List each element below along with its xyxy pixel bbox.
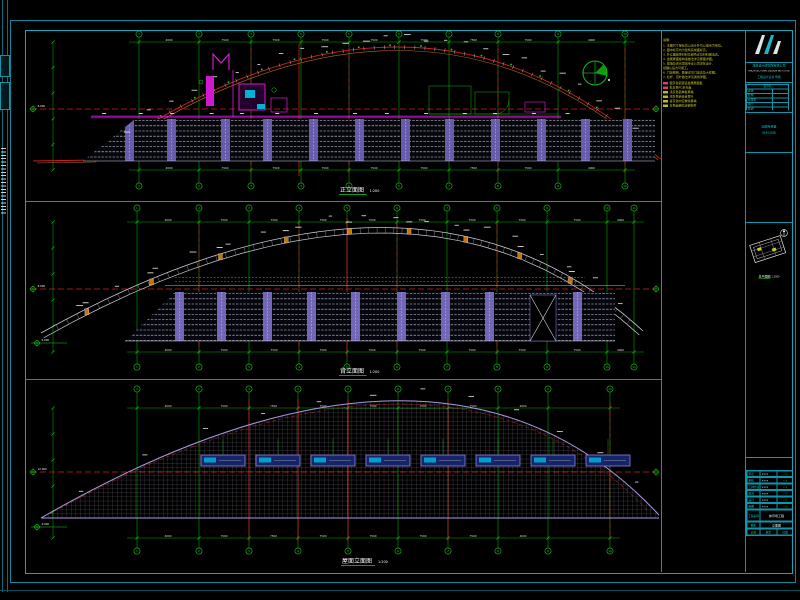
stamp-sublabel: (技术专用章)	[746, 131, 792, 137]
svg-text:8.000: 8.000	[38, 104, 46, 108]
svg-text:11: 11	[632, 206, 636, 210]
svg-text:7500: 7500	[221, 38, 228, 42]
company-logo	[751, 32, 785, 58]
svg-text:4: 4	[298, 365, 300, 369]
svg-text:4000: 4000	[165, 166, 172, 170]
svg-text:7500: 7500	[468, 348, 475, 352]
svg-text:1: 1	[136, 206, 138, 210]
svg-text:8: 8	[497, 32, 499, 36]
adjacent-sheet-block	[0, 55, 10, 77]
svg-text:9: 9	[557, 32, 559, 36]
svg-text:10: 10	[605, 365, 609, 369]
svg-text:7500: 7500	[470, 38, 477, 42]
truss-node-marker	[284, 237, 288, 243]
adjacent-sheet-text-column	[1, 148, 6, 216]
signature-scribble: ∼∿	[777, 478, 792, 484]
svg-text:4000: 4000	[164, 218, 171, 222]
svg-text:9: 9	[546, 365, 548, 369]
svg-text:7500: 7500	[220, 534, 227, 538]
svg-text:1: 1	[136, 387, 138, 391]
svg-text:3: 3	[250, 184, 252, 188]
svg-text:4: 4	[297, 549, 299, 553]
svg-text:4000: 4000	[164, 534, 171, 538]
svg-text:5: 5	[346, 206, 348, 210]
key-plan	[748, 226, 790, 272]
cosign-signature-cell	[773, 107, 789, 110]
truss-node-marker	[347, 228, 351, 234]
signature-scribble: ∼∿	[777, 497, 792, 503]
signature-role-label: 工种负责	[747, 484, 760, 490]
svg-text:7500: 7500	[369, 534, 376, 538]
svg-text:1: 1	[138, 184, 140, 188]
svg-text:4000: 4000	[588, 38, 595, 42]
key-plan-building	[750, 236, 786, 263]
svg-text:2: 2	[198, 32, 200, 36]
svg-text:6: 6	[396, 365, 398, 369]
svg-text:6: 6	[397, 387, 399, 391]
material-label: 白色氟碳喷涂钢构件	[670, 104, 697, 109]
svg-text:8: 8	[497, 184, 499, 188]
svg-text:7: 7	[448, 184, 450, 188]
svg-text:7500: 7500	[270, 534, 277, 538]
svg-text:1:200: 1:200	[378, 560, 388, 564]
svg-text:11: 11	[632, 365, 636, 369]
svg-text:4000: 4000	[164, 348, 171, 352]
level-line: 8.000	[30, 104, 660, 112]
titleblock-divider	[746, 457, 792, 458]
logo-stroke	[755, 35, 765, 54]
elevation-panel-front: 1122334455667788991010400075007500750075…	[25, 30, 661, 201]
key-plan-caption: 总平面图 1:2000	[746, 274, 792, 281]
signature-name: ×××	[760, 491, 777, 497]
company-name: 建筑设计研究院有限公司	[746, 63, 792, 70]
truss-node-marker	[568, 277, 572, 283]
svg-text:4000: 4000	[519, 404, 526, 408]
legend-notes: 1. 本图尺寸除标高以米计外均以毫米为单位。2. 图中标高均为建筑完成面标高。3…	[663, 44, 744, 80]
titleblock-label: 图名	[747, 522, 760, 528]
svg-text:4000: 4000	[617, 218, 624, 222]
svg-text:9: 9	[547, 549, 549, 553]
svg-text:7500: 7500	[319, 218, 326, 222]
svg-text:8: 8	[496, 206, 498, 210]
material-swatch	[663, 91, 668, 94]
svg-text:6: 6	[398, 184, 400, 188]
material-swatch	[663, 87, 668, 90]
svg-text:2: 2	[198, 184, 200, 188]
signature-name: ×××	[760, 484, 777, 490]
signature-scribble: ∼∿	[777, 491, 792, 497]
svg-text:3: 3	[250, 32, 252, 36]
svg-text:8.000: 8.000	[38, 284, 46, 288]
svg-text:7: 7	[446, 206, 448, 210]
brace-panel	[530, 295, 556, 341]
titleblock-divider	[746, 222, 792, 223]
svg-text:3: 3	[248, 206, 250, 210]
material-swatch	[663, 82, 668, 85]
svg-text:4000: 4000	[617, 348, 624, 352]
titleblock-divider	[746, 152, 792, 153]
svg-text:12.000: 12.000	[38, 467, 47, 471]
svg-text:10: 10	[623, 184, 627, 188]
svg-text:7500: 7500	[418, 348, 425, 352]
signature-role-label: 审定	[747, 471, 760, 477]
signature-row: 审核×××∼∿	[747, 477, 793, 484]
legend-material-items: 银灰色铝镁锰金属屋面板乳白色PC采光板浅灰色铝单板幕墙深灰色铝合金百叶蓝灰色中空…	[663, 81, 744, 108]
interior-rooms	[429, 86, 559, 114]
svg-text:7: 7	[447, 549, 449, 553]
svg-text:7500: 7500	[419, 534, 426, 538]
titleblock-bottom-row: 比例 1:200图号日期	[747, 529, 793, 536]
legend-title: 说明:	[663, 38, 744, 43]
svg-text:7500: 7500	[420, 166, 427, 170]
logo-stroke	[773, 41, 781, 54]
svg-text:7500: 7500	[524, 166, 531, 170]
svg-text:7500: 7500	[221, 166, 228, 170]
signature-row: 校对×××∼∿	[747, 490, 793, 497]
signature-role-label: 校对	[747, 491, 760, 497]
svg-text:7500: 7500	[368, 218, 375, 222]
truss-node-marker	[149, 279, 153, 285]
svg-text:5: 5	[347, 387, 349, 391]
signature-role-label: 设计	[747, 497, 760, 503]
titleblock-bottom-cell: 比例 1:200	[747, 529, 760, 535]
legend-material-item: 白色氟碳喷涂钢构件	[663, 104, 744, 109]
svg-text:7500: 7500	[270, 218, 277, 222]
svg-text:5: 5	[347, 549, 349, 553]
svg-text:8: 8	[496, 365, 498, 369]
svg-text:2: 2	[198, 549, 200, 553]
svg-text:10: 10	[608, 549, 612, 553]
svg-text:7500: 7500	[272, 166, 279, 170]
svg-text:正立面图: 正立面图	[340, 186, 364, 194]
signature-role-label: 制图	[747, 504, 760, 510]
svg-text:7500: 7500	[469, 534, 476, 538]
rooftop-equipment	[199, 54, 287, 117]
material-swatch	[663, 105, 668, 108]
svg-text:4000: 4000	[164, 404, 171, 408]
svg-text:2: 2	[198, 365, 200, 369]
svg-text:10: 10	[605, 206, 609, 210]
svg-text:7500: 7500	[368, 348, 375, 352]
signature-role-label: 审核	[747, 478, 760, 484]
truss-node-marker	[85, 309, 89, 315]
signature-table: 审定×××∼∿审核×××∼∿工种负责×××∼∿校对×××∼∿设计×××∼∿制图×…	[746, 470, 792, 572]
svg-text:6: 6	[397, 549, 399, 553]
titleblock-bottom-cell: 图号	[760, 529, 777, 535]
svg-text:7500: 7500	[319, 348, 326, 352]
svg-text:4: 4	[297, 387, 299, 391]
svg-text:7500: 7500	[518, 218, 525, 222]
legend-column-divider	[661, 30, 662, 572]
titleblock-row: 工程名称体育场工程	[747, 510, 793, 522]
signature-name: ×××	[760, 471, 777, 477]
svg-text:7500: 7500	[468, 218, 475, 222]
svg-text:10: 10	[608, 387, 612, 391]
svg-text:2: 2	[198, 387, 200, 391]
logo-stroke	[764, 35, 774, 54]
svg-text:3: 3	[248, 549, 250, 553]
svg-text:7500: 7500	[470, 166, 477, 170]
svg-text:0.000: 0.000	[42, 522, 50, 526]
svg-text:4: 4	[300, 184, 302, 188]
north-compass-icon	[583, 61, 610, 85]
certificate-text: 工程设计证书 甲级	[746, 75, 792, 81]
titleblock-divider	[746, 82, 792, 83]
notes-legend: 说明: 1. 本图尺寸除标高以米计外均以毫米为单位。2. 图中标高均为建筑完成面…	[663, 38, 744, 168]
signature-scribble: ∼∿	[777, 484, 792, 490]
truss-node-marker	[464, 236, 468, 242]
svg-text:5: 5	[348, 32, 350, 36]
truss-node-marker	[518, 253, 522, 259]
seating-tier-band	[83, 119, 655, 161]
svg-text:1:200: 1:200	[370, 189, 380, 193]
adjacent-sheet-block	[0, 82, 10, 110]
svg-text:7500: 7500	[272, 38, 279, 42]
svg-text:1: 1	[136, 549, 138, 553]
svg-text:7500: 7500	[573, 218, 580, 222]
svg-text:6: 6	[398, 32, 400, 36]
svg-text:7500: 7500	[319, 534, 326, 538]
signature-row: 工种负责×××∼∿	[747, 484, 793, 491]
signature-row: 设计×××∼∿	[747, 497, 793, 504]
titleblock-divider	[746, 112, 792, 113]
svg-text:7500: 7500	[220, 404, 227, 408]
svg-text:9: 9	[547, 387, 549, 391]
svg-text:1:200: 1:200	[370, 370, 380, 374]
elevation-panel-roof: 1122334455667788991010400075007500750075…	[25, 379, 661, 573]
titleblock-value: 立面图	[760, 522, 792, 528]
svg-text:8: 8	[497, 387, 499, 391]
svg-text:4000: 4000	[519, 534, 526, 538]
svg-text:1: 1	[136, 365, 138, 369]
svg-text:6: 6	[396, 206, 398, 210]
cosign-table: 会签栏建筑结构给排水电气暖通总图	[746, 84, 792, 110]
svg-text:7500: 7500	[321, 166, 328, 170]
svg-text:4: 4	[300, 32, 302, 36]
svg-text:7500: 7500	[270, 404, 277, 408]
svg-text:7: 7	[448, 32, 450, 36]
cad-screenshot: { "palette":{ "background":"#000000","fr…	[0, 0, 800, 600]
signature-row: 制图×××∼∿	[747, 503, 793, 510]
signature-name: ×××	[760, 497, 777, 503]
signature-name: ×××	[760, 504, 777, 510]
truss-node-marker	[218, 254, 222, 260]
stamp-label: 出图专用章	[746, 124, 792, 131]
svg-text:4000: 4000	[588, 166, 595, 170]
material-swatch	[663, 96, 668, 99]
svg-text:7500: 7500	[370, 38, 377, 42]
sheet-bottom-edge	[0, 590, 800, 591]
svg-text:0.000: 0.000	[42, 338, 50, 342]
svg-text:3: 3	[248, 365, 250, 369]
signature-scribble: ∼∿	[777, 471, 792, 477]
cosign-discipline: 暖通	[747, 107, 773, 110]
elevation-panel-rear: 1122334455667788991010111140007500750075…	[25, 201, 661, 379]
signature-scribble: ∼∿	[777, 504, 792, 510]
svg-text:屋面立面图: 屋面立面图	[342, 557, 372, 565]
svg-text:4: 4	[298, 206, 300, 210]
legend-note: 7. 栏杆、百叶做法详见通用详图。	[663, 75, 744, 80]
svg-text:背立面图: 背立面图	[340, 367, 364, 375]
svg-text:2: 2	[198, 206, 200, 210]
signature-row: 审定×××∼∿	[747, 471, 793, 478]
svg-text:7500: 7500	[524, 38, 531, 42]
svg-text:1: 1	[138, 32, 140, 36]
svg-text:7500: 7500	[573, 348, 580, 352]
svg-text:9: 9	[546, 206, 548, 210]
svg-text:7: 7	[446, 365, 448, 369]
svg-text:7500: 7500	[270, 348, 277, 352]
truss-node-marker	[407, 228, 411, 234]
material-swatch	[663, 100, 668, 103]
svg-text:8: 8	[497, 549, 499, 553]
svg-text:7500: 7500	[321, 38, 328, 42]
titleblock-row: 图名立面图	[747, 522, 793, 529]
axis-grid-lines: 1122334455667788991010	[136, 31, 628, 189]
signature-name: ×××	[760, 478, 777, 484]
svg-text:4000: 4000	[165, 38, 172, 42]
svg-text:7500: 7500	[220, 348, 227, 352]
svg-text:7500: 7500	[220, 218, 227, 222]
svg-text:10: 10	[623, 32, 627, 36]
svg-text:7500: 7500	[518, 348, 525, 352]
titleblock-bottom-cell: 日期	[777, 529, 792, 535]
svg-text:7500: 7500	[370, 166, 377, 170]
svg-text:7: 7	[447, 387, 449, 391]
titleblock-value: 体育场工程	[760, 510, 792, 521]
svg-text:3: 3	[248, 387, 250, 391]
svg-text:9: 9	[557, 184, 559, 188]
titleblock-label: 工程名称	[747, 510, 760, 521]
